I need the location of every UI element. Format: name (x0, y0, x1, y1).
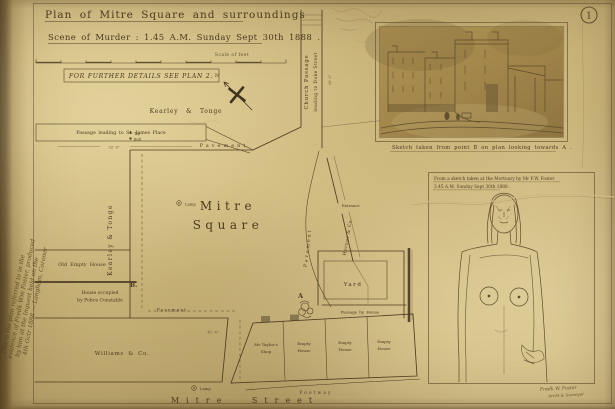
label-pavement-south: Pavement (157, 308, 187, 313)
label-church-passage-2: leading to Duke Street (314, 52, 319, 111)
label-pavement-east: Pavement (303, 228, 314, 267)
label-mitre-street: Mitre Street (171, 396, 319, 405)
label-point-b: B. (130, 282, 137, 289)
plate-number-badge: 1 (581, 7, 597, 23)
label-horner-co: Horner & Co. (342, 218, 355, 257)
label-kearley-tonge-west: Kearley & Tonge (107, 204, 114, 276)
mortuary-caption-line2: 3.45 A.M. Sunday Sept 30th 1888 . (434, 185, 510, 190)
label-old-empty-house: Old Empty House (58, 262, 106, 268)
label-yard: Yard (343, 282, 363, 288)
mortuary-figure-drawing (458, 193, 547, 382)
label-church-passage: Church Passage (304, 54, 310, 109)
header-block: Plan of Mitre Square and surroundings Sc… (45, 9, 320, 44)
label-bolt: Bolt (134, 138, 142, 142)
label-police-house-line2: by Police Constable (77, 298, 123, 304)
label-empty-house-1-line2: House (297, 348, 311, 353)
plate-number: 1 (586, 12, 592, 22)
subtitle-scene-of-murder: Scene of Murder : 1.45 A.M. Sunday Sept … (48, 33, 320, 43)
label-lamp-square: Lamp (185, 202, 196, 207)
north-label: N (215, 73, 219, 79)
label-police-house-line1: House occupied (81, 290, 118, 296)
label-passage-dimension: 32' 6" (108, 145, 119, 150)
scale-label: Scale of feet (215, 52, 249, 58)
label-mitre-square-line1: Mitre (200, 199, 256, 213)
label-empty-house-1-line1: Empty (297, 341, 311, 346)
label-williams-co: Williams & Co. (95, 351, 150, 357)
label-pavement-north: Pavement (200, 143, 249, 149)
label-taylor-shop-line2: Shop (261, 349, 272, 354)
street-sketch-caption: Sketch taken from point B on plan lookin… (392, 145, 572, 151)
label-empty-house-3-line2: House (377, 346, 391, 351)
surveyor-signature: Fredk W. Foster Archt & Surveyor (539, 384, 585, 398)
plan-drawing: Plan of Mitre Square and surroundings Sc… (0, 0, 615, 409)
label-empty-house-3-line1: Empty (377, 339, 391, 344)
label-point-a: A (297, 292, 304, 300)
scale-bar: Scale of feet (36, 52, 286, 63)
page-title: Plan of Mitre Square and surroundings (45, 9, 306, 21)
label-lamp-street: Lamp (200, 386, 211, 391)
lamp-icon (192, 386, 197, 391)
label-passage-by-house: Passage by House (341, 310, 380, 315)
mortuary-sketch-inset: From a sketch taken at the Mortuary by M… (429, 173, 595, 384)
details-note-box: FOR FURTHER DETAILS SEE PLAN 2. (64, 69, 219, 82)
label-empty-house-2-line2: House (338, 347, 352, 352)
street-sketch-inset: Sketch taken from point B on plan lookin… (365, 19, 572, 152)
margin-handwritten-note: This is the plan referred to in the evid… (0, 237, 51, 362)
label-church-passage-dim: 36' 6" (328, 74, 332, 85)
compass-north-arrow-icon: N (215, 73, 252, 110)
plan-sheet: Plan of Mitre Square and surroundings Sc… (0, 0, 615, 409)
label-empty-house-2-line1: Empty (338, 340, 352, 345)
mortuary-caption-line1: From a sketch taken at the Mortuary by M… (434, 177, 555, 182)
label-shops-dimension: 41' 6" (207, 330, 218, 335)
details-note-text: FOR FURTHER DETAILS SEE PLAN 2. (68, 73, 213, 80)
label-footway: Footway (299, 390, 332, 395)
label-entrance: Entrance (342, 203, 360, 208)
label-tap: Tap (134, 132, 141, 136)
murder-spot-mark (299, 301, 313, 318)
label-mitre-square-line2: Square (193, 218, 264, 232)
pencil-scribbles (190, 8, 387, 124)
label-passage-st-james: Passage leading to St. James Place (76, 130, 166, 136)
signature-line2: Archt & Surveyor (547, 391, 585, 398)
label-kearley-tonge-north: Kearley & Tonge (150, 108, 223, 115)
label-taylor-shop-line1: Mr Taylor's (254, 342, 278, 347)
lamp-icon (177, 201, 182, 206)
